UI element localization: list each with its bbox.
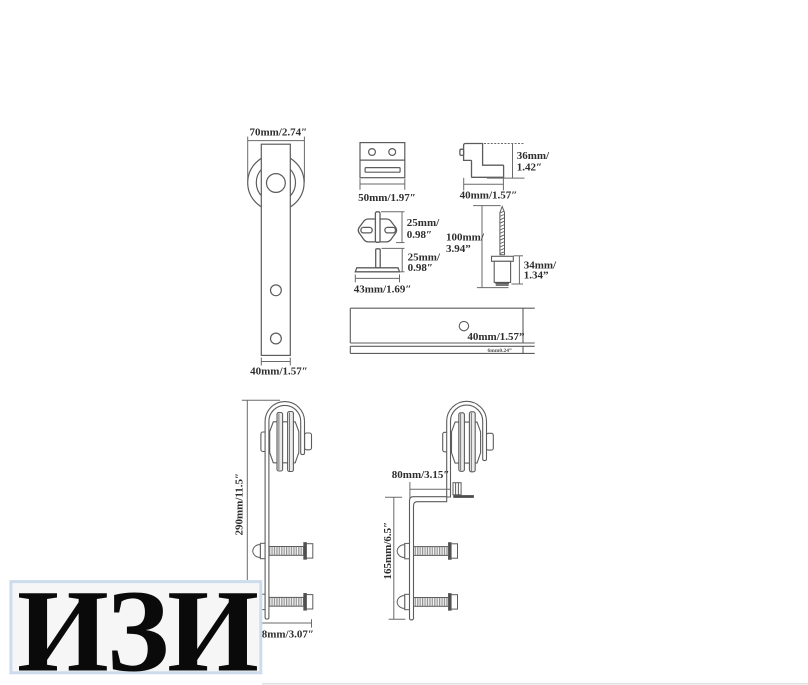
svg-text:43mm/1.69″: 43mm/1.69″ xyxy=(354,283,412,295)
svg-text:36mm/: 36mm/ xyxy=(517,150,550,162)
svg-text:0.98″: 0.98″ xyxy=(407,229,432,241)
svg-text:1.42″: 1.42″ xyxy=(517,162,542,174)
svg-text:100mm/: 100mm/ xyxy=(446,232,485,244)
svg-text:40mm/1.57”: 40mm/1.57” xyxy=(467,331,524,343)
svg-text:0.98″: 0.98″ xyxy=(408,262,433,274)
svg-text:6mm0.24”: 6mm0.24” xyxy=(488,348,513,354)
svg-text:290mm/11.5″: 290mm/11.5″ xyxy=(234,473,246,536)
svg-text:80mm/3.15″: 80mm/3.15″ xyxy=(392,469,450,481)
svg-text:165mm/6.5″: 165mm/6.5″ xyxy=(382,522,394,580)
svg-text:40mm/1.57″: 40mm/1.57″ xyxy=(460,190,518,202)
svg-text:70mm/2.74″: 70mm/2.74″ xyxy=(249,126,307,138)
svg-text:3.94”: 3.94” xyxy=(446,243,471,255)
svg-text:78mm/3.07″: 78mm/3.07″ xyxy=(256,628,314,640)
svg-text:25mm/: 25mm/ xyxy=(407,217,440,229)
svg-text:50mm/1.97″: 50mm/1.97″ xyxy=(358,192,416,204)
svg-text:ИЗИ: ИЗИ xyxy=(17,566,257,685)
svg-text:1.34”: 1.34” xyxy=(524,269,549,281)
svg-text:40mm/1.57″: 40mm/1.57″ xyxy=(250,365,308,377)
